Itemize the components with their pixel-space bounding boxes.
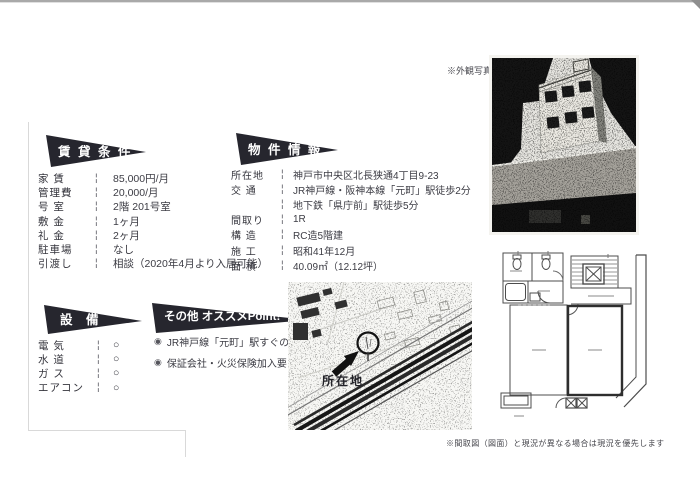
row-value: ○ <box>113 339 119 351</box>
field-separator: ¦ <box>281 184 293 195</box>
field-separator: ¦ <box>95 173 113 184</box>
info-row: エアコン¦○ <box>38 381 119 395</box>
field-separator: ¦ <box>281 245 293 256</box>
field-separator: ¦ <box>97 382 113 393</box>
row-value: 1R <box>293 214 306 225</box>
row-value: JR神戸線・阪神本線「元町」駅徒歩2分 <box>293 182 471 197</box>
info-row: 面 積¦40.09㎡（12.12坪） <box>231 258 471 273</box>
exterior-photo <box>489 55 639 235</box>
field-separator: ¦ <box>95 201 113 212</box>
row-value: 40.09㎡（12.12坪） <box>293 258 383 273</box>
row-label: 号 室 <box>38 199 95 214</box>
field-separator: ¦ <box>95 244 113 255</box>
info-row: ¦地下鉄「県庁前」駅徒歩5分 <box>231 197 471 212</box>
point-text: 保証会社・火災保険加入要 <box>167 355 287 370</box>
scan-corner-shadow <box>691 0 700 9</box>
row-label: エアコン <box>38 380 97 395</box>
row-value: ○ <box>113 367 119 379</box>
row-label: 駐車場 <box>38 242 95 257</box>
row-value: ○ <box>113 353 119 365</box>
row-value: 2階 201号室 <box>113 199 171 214</box>
paper-edge-step <box>185 430 186 457</box>
row-value: 20,000/月 <box>113 185 159 200</box>
field-separator: ¦ <box>95 258 113 269</box>
circled-dot-icon: ◉ <box>154 336 162 347</box>
row-value: なし <box>113 242 134 257</box>
section-title-rental: 賃 貸 条 件 <box>58 141 132 160</box>
field-separator: ¦ <box>281 229 293 240</box>
row-value: 2ヶ月 <box>113 228 140 243</box>
scanned-property-flyer: 賃 貸 条 件 家 賃¦85,000円/月 管理費¦20,000/月 号 室¦2… <box>0 0 700 495</box>
location-map <box>288 282 472 430</box>
row-label: 敷 金 <box>38 214 95 229</box>
equipment-table: 電 気¦○ 水 道¦○ ガ ス¦○ エアコン¦○ <box>38 338 119 395</box>
info-row: 水 道¦○ <box>38 352 119 366</box>
row-value: 地下鉄「県庁前」駅徒歩5分 <box>293 197 419 212</box>
info-row: ガ ス¦○ <box>38 366 119 380</box>
row-label: 礼 金 <box>38 228 95 243</box>
row-label: 施 工 <box>231 243 281 258</box>
section-title-points: その他 オススメPoint! <box>164 308 280 324</box>
section-banner-equipment: 設 備 <box>44 301 144 336</box>
paper-edge-left <box>28 122 29 430</box>
row-value: 神戸市中央区北長狭通4丁目9-23 <box>293 167 439 182</box>
section-title-equipment: 設 備 <box>60 309 103 328</box>
field-separator: ¦ <box>95 216 113 227</box>
photo-caption: ※外観写真 <box>447 64 492 77</box>
field-separator: ¦ <box>281 169 293 180</box>
property-info-table: 所在地¦神戸市中央区北長狭通4丁目9-23 交 通¦JR神戸線・阪神本線「元町」… <box>231 167 471 273</box>
info-row: 交 通¦JR神戸線・阪神本線「元町」駅徒歩2分 <box>231 182 471 197</box>
scan-edge-line-light <box>0 2 700 3</box>
row-label: 所在地 <box>231 167 281 182</box>
row-value: 85,000円/月 <box>113 171 169 186</box>
row-label: 構 造 <box>231 227 281 242</box>
row-label: 水 道 <box>38 352 97 367</box>
section-title-property: 物 件 情 報 <box>248 139 322 158</box>
floorplan-diagram <box>488 246 660 430</box>
field-separator: ¦ <box>95 187 113 198</box>
row-value: 昭和41年12月 <box>293 243 355 258</box>
row-label: 電 気 <box>38 338 97 353</box>
section-banner-rental: 賃 貸 条 件 <box>46 130 148 168</box>
info-row: 電 気¦○ <box>38 338 119 352</box>
field-separator: ¦ <box>97 340 113 351</box>
row-label: 面 積 <box>231 258 281 273</box>
info-row: 施 工¦昭和41年12月 <box>231 242 471 257</box>
floorplan-caption: ※間取図（図面）と現況が異なる場合は現況を優先します <box>446 438 664 449</box>
row-value: ○ <box>113 382 119 394</box>
row-value: 1ヶ月 <box>113 214 140 229</box>
row-value: RC造5階建 <box>293 227 343 242</box>
field-separator: ¦ <box>97 354 113 365</box>
section-banner-property: 物 件 情 報 <box>236 128 340 166</box>
field-separator: ¦ <box>95 230 113 241</box>
section-banner-points: その他 オススメPoint! <box>152 299 310 335</box>
row-label: ガ ス <box>38 366 97 381</box>
field-separator: ¦ <box>281 260 293 271</box>
map-marker-label: 所在地 <box>322 372 364 389</box>
row-label: 引渡し <box>38 256 95 271</box>
info-row: 所在地¦神戸市中央区北長狭通4丁目9-23 <box>231 167 471 182</box>
paper-edge-bottom <box>28 430 185 431</box>
field-separator: ¦ <box>97 368 113 379</box>
field-separator: ¦ <box>281 199 293 210</box>
row-label: 交 通 <box>231 182 281 197</box>
info-row: 構 造¦RC造5階建 <box>231 227 471 242</box>
row-label: 間取り <box>231 212 281 227</box>
circled-dot-icon: ◉ <box>154 357 162 368</box>
row-label: 管理費 <box>38 185 95 200</box>
info-row: 間取り¦1R <box>231 212 471 227</box>
field-separator: ¦ <box>281 214 293 225</box>
row-label: 家 賃 <box>38 171 95 186</box>
